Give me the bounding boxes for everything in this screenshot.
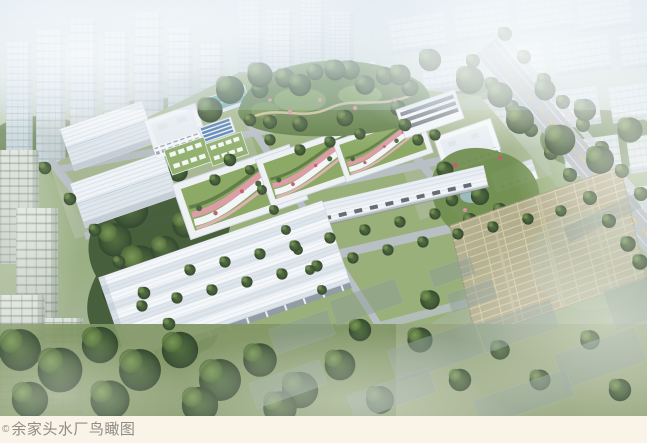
- caption-bar: © 余家头水厂鸟瞰图: [0, 416, 647, 443]
- rendering-figure: © 余家头水厂鸟瞰图: [0, 0, 647, 443]
- aerial-rendering-image: [0, 0, 647, 416]
- aerial-rendering-scene: [0, 0, 647, 416]
- mist-overlays: [0, 0, 647, 416]
- copyright-symbol: ©: [2, 425, 9, 435]
- image-caption: 余家头水厂鸟瞰图: [11, 422, 135, 437]
